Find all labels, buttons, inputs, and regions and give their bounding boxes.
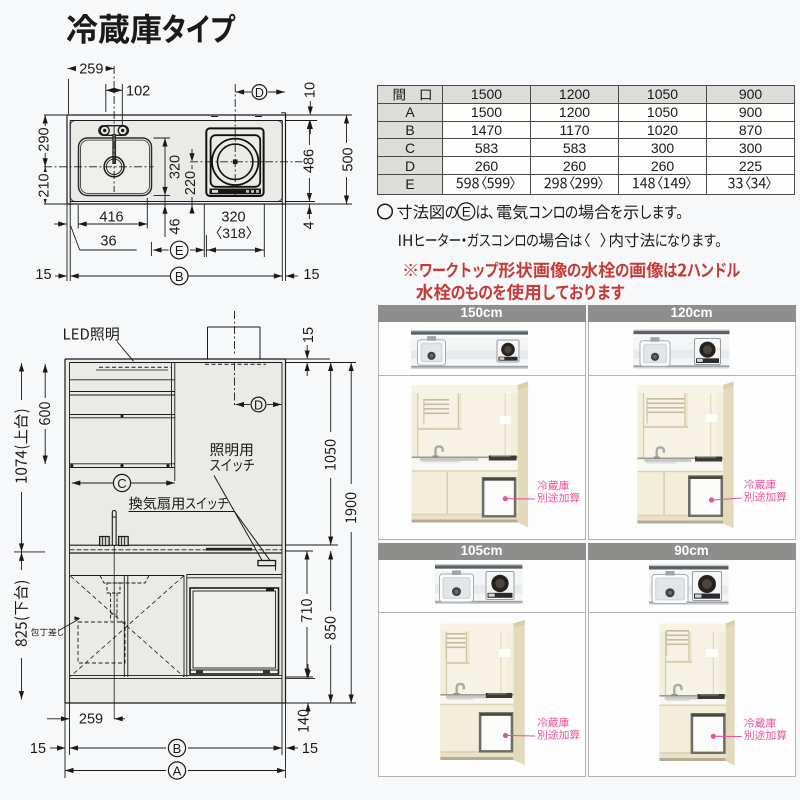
svg-text:D: D (255, 86, 264, 100)
svg-text:B: B (175, 269, 184, 284)
svg-text:416: 416 (99, 209, 123, 225)
svg-text:259: 259 (79, 62, 103, 78)
svg-text:15: 15 (35, 267, 51, 283)
svg-text:290: 290 (37, 127, 53, 151)
svg-text:15: 15 (302, 741, 318, 757)
svg-text:15: 15 (30, 741, 46, 757)
svg-text:4: 4 (301, 221, 317, 229)
svg-text:220: 220 (183, 171, 199, 195)
svg-text:500: 500 (341, 147, 357, 171)
svg-text:E: E (462, 205, 471, 220)
svg-text:36: 36 (100, 234, 116, 250)
svg-text:〈318〉: 〈318〉 (208, 225, 259, 241)
svg-text:15: 15 (303, 267, 319, 283)
svg-text:D: D (254, 398, 263, 412)
svg-text:259: 259 (79, 712, 103, 728)
svg-text:46: 46 (168, 218, 184, 234)
svg-text:320: 320 (168, 155, 184, 179)
svg-text:A: A (173, 764, 182, 779)
svg-text:102: 102 (126, 83, 150, 99)
svg-text:15: 15 (301, 327, 317, 343)
svg-text:C: C (117, 476, 126, 491)
svg-text:210: 210 (37, 173, 53, 197)
svg-text:486: 486 (301, 149, 317, 173)
svg-text:10: 10 (303, 82, 319, 98)
svg-text:320: 320 (221, 210, 245, 226)
svg-text:B: B (173, 741, 182, 756)
svg-text:E: E (175, 243, 184, 258)
